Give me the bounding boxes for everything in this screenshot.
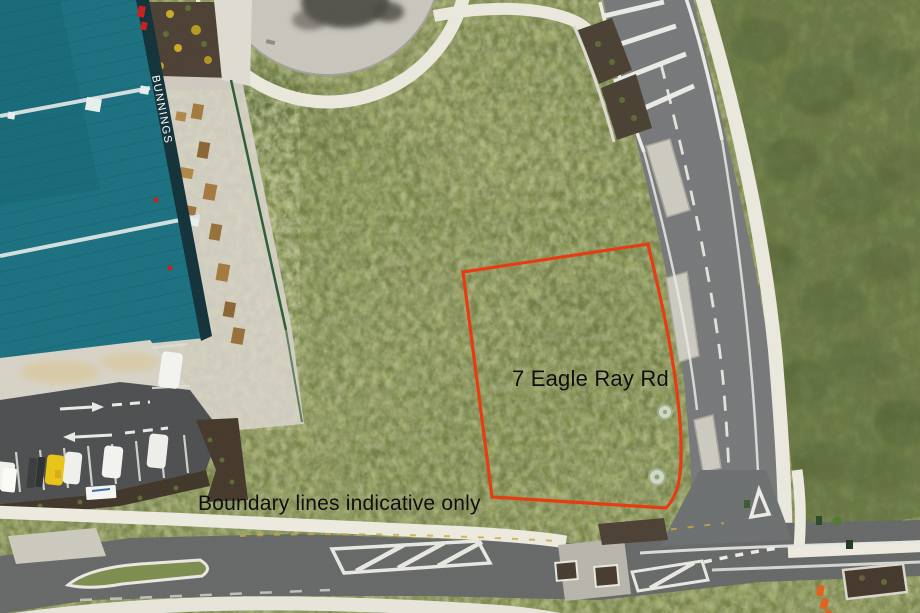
aerial-photo-canvas: BUNNINGS (0, 0, 920, 613)
property-address-label: 7 Eagle Ray Rd (512, 366, 669, 392)
aerial-photo: BUNNINGS (0, 0, 920, 613)
boundary-disclaimer-label: Boundary lines indicative only (198, 492, 481, 516)
photo-grain (0, 0, 920, 613)
